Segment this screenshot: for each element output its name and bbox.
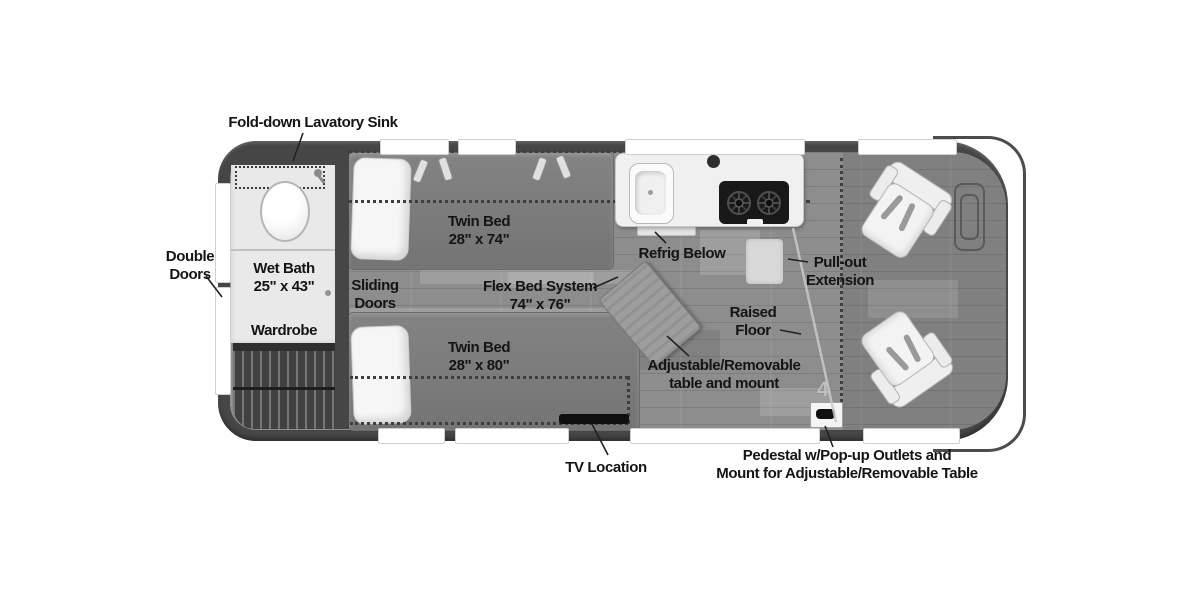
counter-round-cover: [707, 155, 720, 168]
label-twin-bed-top: Twin Bed 28" x 74": [448, 213, 510, 249]
label-flex-bed-system: Flex Bed System 74" x 76": [483, 278, 597, 314]
label-line: Twin Bed: [448, 339, 510, 357]
bath-door-knob: [325, 290, 331, 296]
label-sliding-doors: Sliding Doors: [351, 277, 398, 313]
table-mount-icon: 4: [817, 378, 829, 402]
label-twin-bed-bottom: Twin Bed 28" x 80": [448, 339, 510, 375]
label-line: Double: [166, 248, 214, 266]
wardrobe-rod: [233, 387, 337, 390]
window-top: [625, 139, 805, 155]
pillow-bottom: [350, 325, 411, 425]
label-adjustable-table: Adjustable/Removable table and mount: [648, 357, 801, 393]
label-line: 28" x 74": [448, 231, 510, 249]
label-line: Pedestal w/Pop-up Outlets and: [716, 447, 977, 465]
label-line: table and mount: [648, 375, 801, 393]
toilet: [260, 181, 310, 242]
label-pull-out-extension: Pull-out Extension: [806, 254, 874, 290]
window-bottom: [378, 428, 445, 444]
window-cab-door-top: [858, 139, 957, 155]
window-top: [458, 139, 516, 155]
label-tv-location: TV Location: [565, 459, 646, 477]
double-door-lower: [215, 287, 231, 395]
sink-drain: [648, 190, 653, 195]
bath-divider-line: [231, 249, 337, 251]
window-bottom: [455, 428, 569, 444]
pull-out-extension-panel: [746, 239, 783, 284]
double-door-upper: [215, 183, 231, 283]
floorplan-canvas: 4 Fold-down Lavatory Sink Double Doors: [0, 0, 1200, 600]
label-line: Raised: [730, 304, 777, 322]
wardrobe-cabinet: [233, 343, 337, 429]
label-line: Sliding: [351, 277, 398, 295]
label-fold-down-lavatory-sink: Fold-down Lavatory Sink: [228, 114, 397, 132]
label-raised-floor: Raised Floor: [730, 304, 777, 340]
label-line: 25" x 43": [253, 278, 315, 296]
label-line: Doors: [351, 295, 398, 313]
pillow-top: [350, 157, 412, 261]
tv-location-bar: [559, 414, 629, 424]
label-line: Twin Bed: [448, 213, 510, 231]
wardrobe-top-edge: [233, 343, 337, 351]
stove-burner-icon: [724, 188, 754, 218]
pop-up-outlet: [816, 409, 835, 419]
bath-upper-wall: [231, 152, 350, 165]
label-double-doors: Double Doors: [166, 248, 214, 284]
window-bottom: [630, 428, 820, 444]
label-line: Floor: [730, 322, 777, 340]
label-line: Adjustable/Removable: [648, 357, 801, 375]
window-top: [380, 139, 449, 155]
label-line: Mount for Adjustable/Removable Table: [716, 465, 977, 483]
label-wet-bath: Wet Bath 25" x 43": [253, 260, 315, 296]
label-refrig-below: Refrig Below: [639, 245, 726, 263]
label-pedestal: Pedestal w/Pop-up Outlets and Mount for …: [716, 447, 977, 483]
label-line: Doors: [166, 266, 214, 284]
label-line: Extension: [806, 272, 874, 290]
stove-burner-icon: [754, 188, 784, 218]
label-line: Flex Bed System: [483, 278, 597, 296]
label-line: Pull-out: [806, 254, 874, 272]
label-line: 28" x 80": [448, 357, 510, 375]
flex-bed-dotted-line: [350, 376, 628, 379]
label-line: Wet Bath: [253, 260, 315, 278]
bath-partition-wall: [335, 152, 349, 429]
stove-notch: [747, 219, 763, 225]
steering-wheel-hub: [960, 194, 979, 240]
window-cab-door-bottom: [863, 428, 960, 444]
label-line: 74" x 76": [483, 296, 597, 314]
label-wardrobe: Wardrobe: [251, 322, 317, 340]
